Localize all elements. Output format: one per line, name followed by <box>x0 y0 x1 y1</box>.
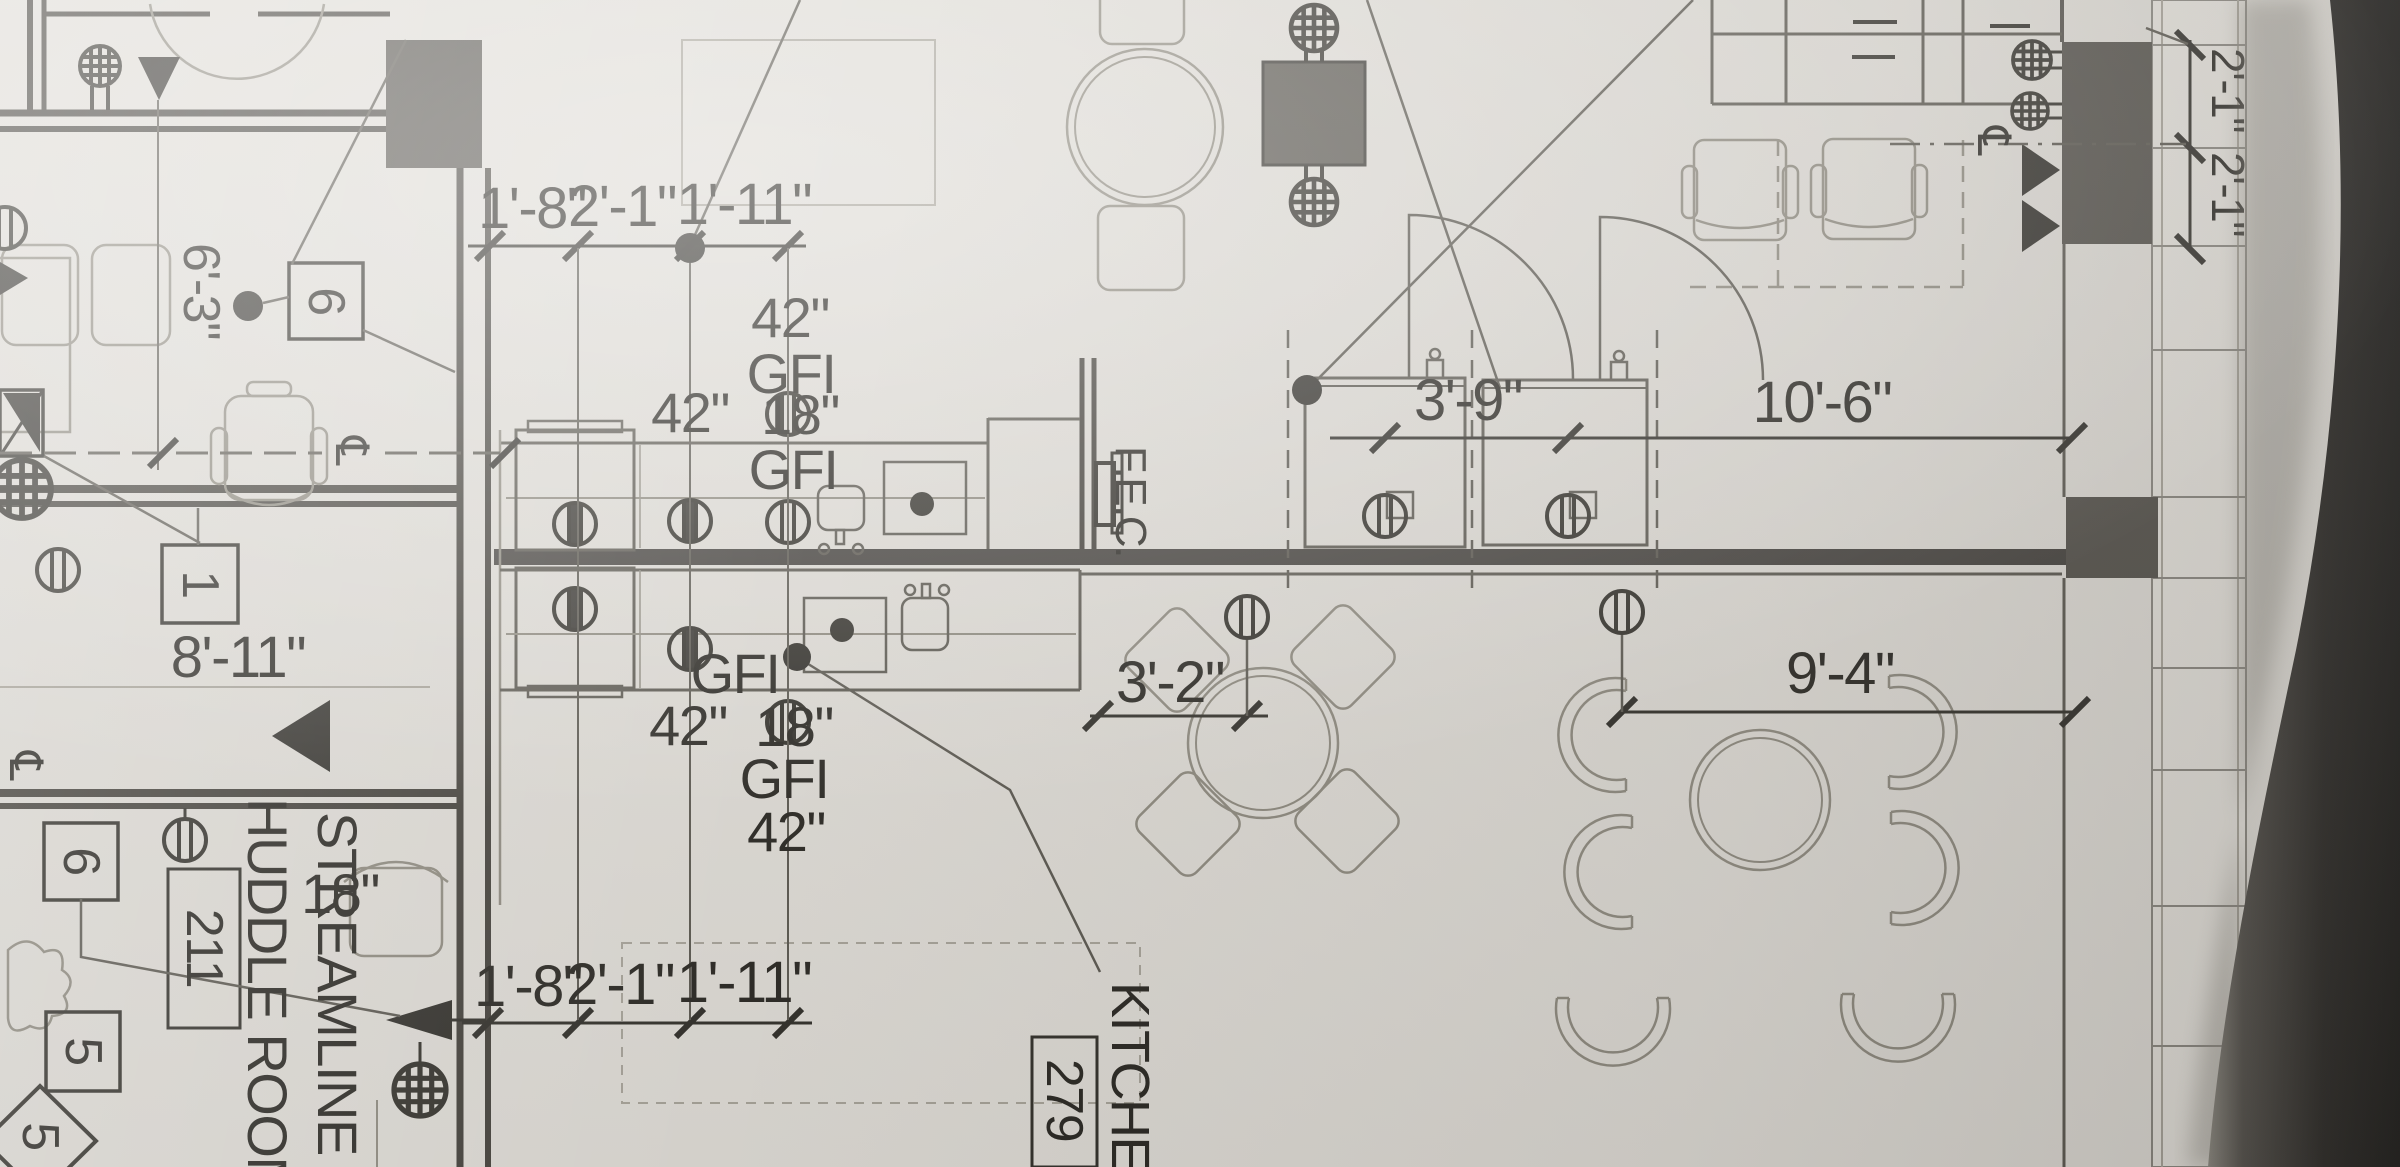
dim-top-b: 2'-1" <box>568 174 676 239</box>
mount-42-lower: 42" <box>747 800 825 863</box>
dim-top-c: 1'-11" <box>677 172 811 237</box>
outlet-icon <box>37 549 79 591</box>
centerline-symbol: ℄ <box>325 435 379 466</box>
column-symbol <box>2013 41 2051 79</box>
huddle-room-name-2: HUDDLE ROOM <box>236 798 299 1167</box>
dim-room-width: 8'-11" <box>171 625 305 690</box>
huddle-room-number: 211 <box>175 909 233 987</box>
floor-outlet-icon <box>1226 596 1268 638</box>
column-symbol <box>80 46 120 86</box>
mount-18-upper: 18" <box>761 383 839 446</box>
square-table-dark <box>1263 5 1365 225</box>
dim-bottom-c: 1'-11" <box>677 950 811 1015</box>
section-marker-bottom <box>386 1000 486 1116</box>
lounge-chair <box>1682 140 1798 240</box>
outlet-icon <box>554 588 596 630</box>
door-swing <box>1409 215 1573 379</box>
cafe-table-1 <box>1120 600 1403 880</box>
fec-label: F.E.C. <box>1106 446 1155 557</box>
dim-window-run: 10'-6" <box>1753 370 1892 435</box>
centerline-symbol: ℄ <box>1967 125 2021 156</box>
wire-chair <box>1291 5 1337 51</box>
keynote-5: 5 <box>54 1037 112 1064</box>
dim-cabinets: 3'-9" <box>1414 368 1522 433</box>
guest-chair <box>2 245 78 345</box>
huddle-room-name-1: STREAMLINE <box>306 812 369 1155</box>
outlet-icon <box>1547 495 1589 537</box>
plant <box>8 941 71 1030</box>
lounge-chair <box>1811 139 1927 239</box>
sink-lower <box>902 584 949 650</box>
outlet-icon <box>164 819 206 861</box>
section-arrow-icon <box>272 700 330 772</box>
section-arrow-icon <box>0 262 28 295</box>
wire-chair <box>1291 179 1337 225</box>
outlet-icon <box>1364 495 1406 537</box>
dim-table: 9'-4" <box>1786 641 1894 706</box>
cafe-table-2 <box>1556 675 1959 1066</box>
corridor-wall <box>494 549 2072 565</box>
kitchenette-number: 279 <box>1035 1059 1093 1141</box>
centerline-symbol: ℄ <box>0 750 53 781</box>
mount-42-upper: 42" <box>751 286 829 349</box>
cabinet-knob <box>1611 351 1627 380</box>
mullion-poche-mid <box>2066 497 2158 578</box>
floor-plan-drawing: 1'-8" 2'-1" 1'-11" 1'-8" 2'-1" 1'-11" 42… <box>0 0 2400 1167</box>
keynote-6b: 6 <box>52 847 110 874</box>
dim-room-depth: 6'-3" <box>172 243 230 339</box>
keynote-1: 1 <box>171 570 229 597</box>
dim-island: 3'-2" <box>1116 650 1224 715</box>
floor-outlet-icon <box>1601 591 1643 633</box>
dim-bottom-b: 2'-1" <box>566 952 674 1017</box>
outlet-icon <box>554 503 596 545</box>
section-arrow-icon <box>2022 200 2060 252</box>
round-table-top <box>1067 0 1223 290</box>
keynote-5-diamond: 5 <box>11 1122 69 1149</box>
gfi-upper-2: GFI <box>749 438 838 501</box>
keynote-6: 6 <box>297 287 355 314</box>
floor-plan-photo: 1'-8" 2'-1" 1'-11" 1'-8" 2'-1" 1'-11" 42… <box>0 0 2400 1167</box>
outlet-icon <box>0 207 26 249</box>
kitchenette-name: KITCHENETTE <box>1100 982 1160 1167</box>
section-arrow-icon <box>2022 144 2060 196</box>
column-symbol <box>2012 93 2048 129</box>
section-arrow-icon <box>138 57 180 100</box>
mount-42-lower-left: 42" <box>649 694 727 757</box>
mount-42-upper-left: 42" <box>651 381 729 444</box>
wall-poche-block <box>386 40 482 168</box>
tall-cabinets <box>1288 215 1763 600</box>
